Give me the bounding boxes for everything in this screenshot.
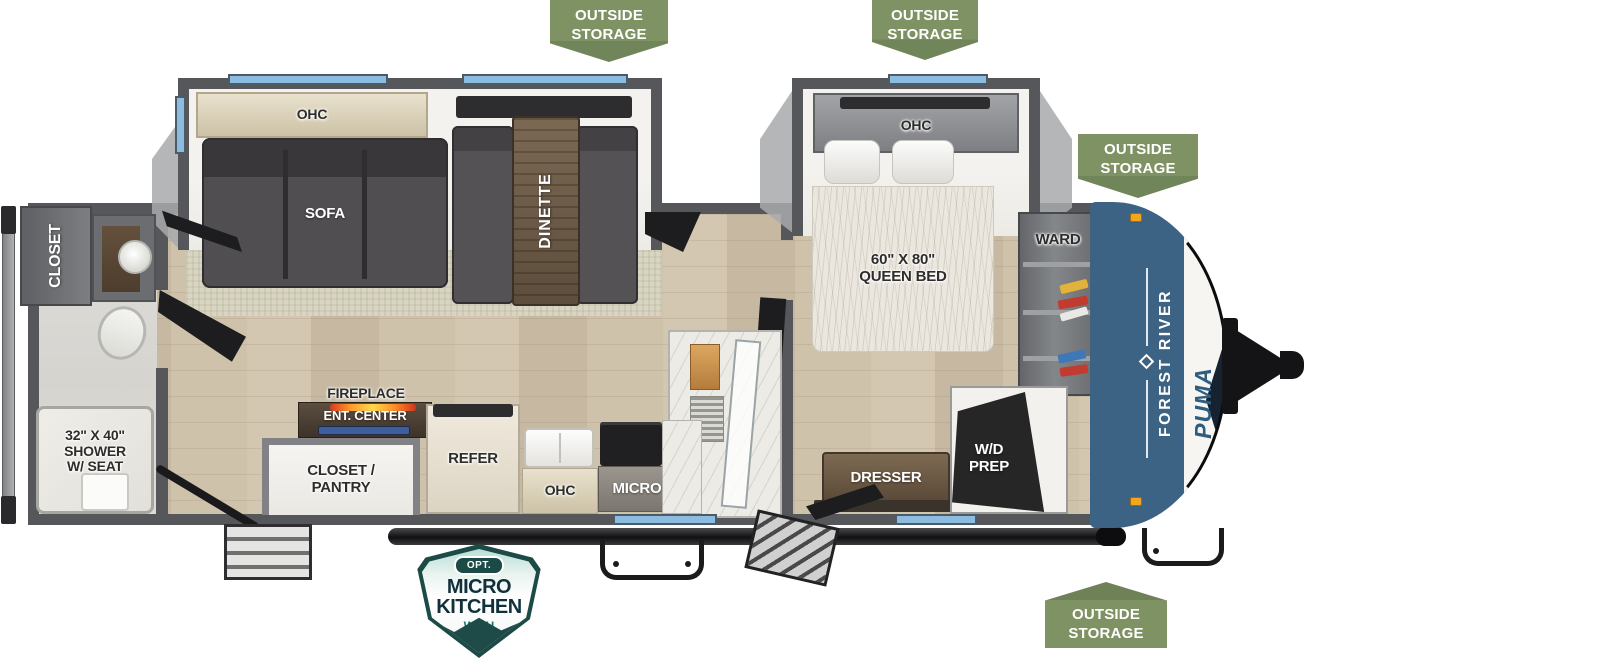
pillow-right: [892, 140, 954, 184]
frame-rail-end: [1096, 527, 1126, 546]
tv: [318, 426, 410, 435]
brand-line-top: [1146, 268, 1148, 346]
rear-bumper-end-bottom: [1, 496, 16, 524]
marker-light-top: [1130, 213, 1142, 222]
rear-bumper-end-top: [1, 206, 16, 234]
rear-bath-wall-lower: [156, 368, 168, 514]
fireplace-label: FIREPLACE: [320, 386, 412, 402]
brand-name: FOREST RIVER: [1157, 243, 1175, 483]
slideout-window-1: [228, 74, 388, 85]
marker-light-bottom: [1130, 497, 1142, 506]
floorplan-canvas: OHC SOFA DINETTE OHC 60" X 80" QUEEN BED…: [0, 0, 1600, 660]
queen-bed: 60" X 80" QUEEN BED: [812, 186, 994, 352]
hitch-plate: [1222, 318, 1238, 414]
micro-label: MICRO: [613, 481, 662, 498]
refrigerator: REFER: [426, 404, 520, 514]
badge-title: MICRO KITCHEN: [417, 577, 541, 617]
rear-shower-label: 32" X 40" SHOWER W/ SEAT: [58, 428, 132, 475]
stabilizer-bracket-1: [600, 540, 704, 580]
kitchen-overhead-cabinet: OHC: [522, 468, 598, 514]
rear-bumper: [2, 212, 15, 518]
outside-storage-label: OUTSIDE STORAGE: [564, 7, 654, 45]
kitchen-sink: [524, 428, 594, 468]
closet-pantry-label: CLOSET / PANTRY: [295, 463, 387, 497]
queen-bed-label: 60" X 80" QUEEN BED: [851, 252, 955, 286]
bedroom-window: [888, 74, 988, 85]
bedroom-ohc-label: OHC: [876, 118, 956, 134]
dresser-label: DRESSER: [850, 470, 921, 487]
outside-storage-badge-2: OUTSIDE STORAGE: [872, 0, 978, 60]
sofa-label: SOFA: [285, 206, 365, 223]
dinette-bench-right: [576, 126, 638, 304]
micro-kitchen-badge-inner: OPT. MICRO KITCHEN WITH GRIDDLE: [417, 549, 541, 653]
stabilizer-bracket-2: [1142, 528, 1224, 566]
ward-shelf: [1023, 262, 1093, 267]
living-overhead-cabinet: OHC: [196, 92, 428, 138]
outside-storage-label: OUTSIDE STORAGE: [1093, 141, 1183, 179]
bolt: [685, 561, 691, 567]
closet-pantry: CLOSET / PANTRY: [262, 438, 420, 515]
hitch-coupler: [1280, 351, 1304, 379]
outside-storage-badge-3: OUTSIDE STORAGE: [1078, 134, 1198, 198]
model-name: PUMA: [1190, 343, 1216, 463]
slideout-window-side: [175, 96, 186, 154]
outside-storage-label: OUTSIDE STORAGE: [1060, 606, 1152, 644]
shower-wood-panel: [690, 344, 720, 390]
wd-prep-label: W/D PREP: [964, 442, 1014, 476]
shower-glass-door: [721, 339, 762, 509]
slideout-window-2: [462, 74, 628, 85]
bottom-window-1: [613, 514, 717, 525]
micro-kitchen-badge: OPT. MICRO KITCHEN WITH GRIDDLE: [412, 544, 546, 658]
kitchen-counter-end: [662, 420, 702, 514]
bath-sink: [118, 240, 152, 274]
bottom-window-2: [895, 514, 977, 525]
dinette-label: DINETTE: [537, 141, 555, 281]
outside-storage-label: OUTSIDE STORAGE: [881, 7, 969, 45]
entry-steps-1: [224, 524, 312, 580]
kitchen-ohc-label: OHC: [545, 483, 576, 499]
brand-line-bottom: [1146, 380, 1148, 458]
stove: [600, 422, 662, 466]
badge-opt-pill: OPT.: [454, 556, 504, 575]
refer-top: [433, 404, 513, 417]
bolt: [613, 561, 619, 567]
pillow-left: [824, 140, 880, 184]
bolt: [1153, 548, 1159, 554]
hitch-a-frame: [1236, 330, 1284, 402]
ward-label: WARD: [1022, 232, 1094, 249]
ent-center-label: ENT. CENTER: [306, 409, 424, 424]
refer-label: REFER: [448, 451, 498, 468]
rear-closet-label: CLOSET: [47, 206, 65, 306]
living-ohc-label: OHC: [297, 107, 328, 123]
dinette-bench-left: [452, 126, 514, 304]
shower-seat: [81, 473, 129, 511]
outside-storage-badge-4: OUTSIDE STORAGE: [1045, 582, 1167, 648]
sink-divider: [559, 433, 561, 463]
outside-storage-badge-1: OUTSIDE STORAGE: [550, 0, 668, 62]
dinette-counter: [456, 96, 632, 118]
bedroom-ohc-trim: [840, 97, 990, 109]
